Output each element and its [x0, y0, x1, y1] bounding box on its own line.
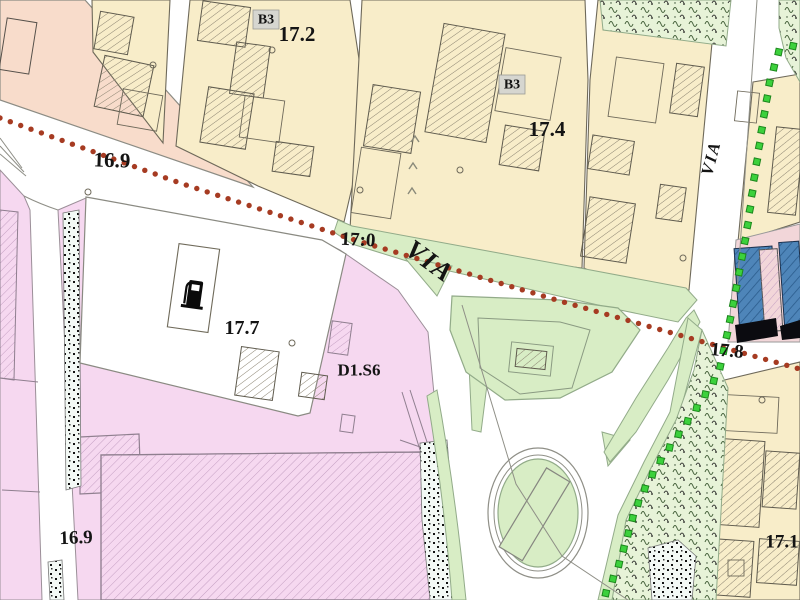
red-dot [752, 354, 757, 359]
red-dot [699, 339, 704, 344]
red-dot [520, 287, 525, 292]
red-dot [467, 271, 472, 276]
red-dot [572, 303, 577, 308]
green-square-dot [775, 48, 783, 56]
map-label-elev-16-9-bottom: 16.9 [59, 527, 93, 549]
red-dot [646, 324, 651, 329]
map-label-elev-16-9-top: 16.9 [93, 147, 131, 172]
red-dot [142, 168, 147, 173]
red-dot [689, 336, 694, 341]
red-dot [267, 210, 272, 215]
red-dot [583, 306, 588, 311]
red-dot [309, 223, 314, 228]
red-dot [49, 134, 54, 139]
red-dot [625, 318, 630, 323]
red-dot [477, 275, 482, 280]
map-label-zone-b3-1: B3 [258, 13, 274, 28]
red-dot [456, 268, 461, 273]
red-dot [562, 300, 567, 305]
green-square-dot [620, 545, 628, 553]
red-dot [320, 227, 325, 232]
green-square-dot [602, 589, 610, 597]
green-square-dot [634, 499, 642, 507]
red-dot [8, 119, 13, 124]
map-label-elev-17-0: 17:0 [340, 229, 376, 252]
green-square-dot [609, 575, 617, 583]
green-square-dot [741, 237, 749, 245]
map-canvas: 16.9B317.2B317.417:0VIAVIA17.7D1.S617.81… [0, 0, 800, 600]
green-square-dot [693, 404, 701, 412]
roundabout [488, 448, 588, 578]
red-dot [288, 216, 293, 221]
green-square-dot [723, 331, 731, 339]
red-dot [604, 312, 609, 317]
red-dot [774, 360, 779, 365]
red-dot [499, 281, 504, 286]
red-dot [636, 321, 641, 326]
green-square-dot [729, 300, 737, 308]
green-square-dot [702, 391, 710, 399]
green-square-dot [675, 430, 683, 438]
red-dot [594, 309, 599, 314]
green-square-dot [710, 377, 718, 385]
industrial-building-hatched [80, 434, 438, 600]
red-dot [153, 171, 158, 176]
map-label-zone-d1s6: D1.S6 [338, 361, 381, 380]
red-dot [795, 366, 800, 371]
red-dot [236, 199, 241, 204]
map-label-elev-17-8: 17.8 [710, 339, 745, 363]
red-dot [657, 327, 662, 332]
red-dot [615, 315, 620, 320]
red-dot [488, 278, 493, 283]
red-dot [132, 164, 137, 169]
green-square-dot [649, 471, 657, 479]
red-dot [225, 196, 230, 201]
red-dot [163, 175, 168, 180]
green-square-dot [753, 158, 761, 166]
green-square-dot [770, 64, 778, 72]
green-square-dot [746, 205, 754, 213]
green-square-dot [755, 142, 763, 150]
red-dot [541, 293, 546, 298]
red-dot [257, 206, 262, 211]
green-square-dot [615, 560, 623, 568]
red-dot [299, 220, 304, 225]
red-dot [173, 179, 178, 184]
red-dot [551, 297, 556, 302]
green-square-dot [760, 110, 768, 118]
red-dot [215, 193, 220, 198]
red-dot [39, 130, 44, 135]
map-label-elev-17-2: 17.2 [279, 22, 316, 46]
red-dot [393, 250, 398, 255]
map-label-elev-17-7: 17.7 [225, 317, 260, 339]
red-dot [530, 290, 535, 295]
map-label-elev-17-4: 17.4 [529, 117, 566, 141]
red-dot [184, 182, 189, 187]
red-dot [763, 357, 768, 362]
green-square-dot [766, 79, 774, 87]
red-dot [784, 363, 789, 368]
red-dot [18, 123, 23, 128]
red-dot [678, 333, 683, 338]
green-square-dot [748, 190, 756, 198]
green-square-dot [744, 221, 752, 229]
green-square-dot [735, 268, 743, 276]
green-square-dot [641, 485, 649, 493]
green-square-dot [789, 42, 797, 50]
red-dot [205, 189, 210, 194]
green-square-dot [758, 126, 766, 134]
red-dot [278, 213, 283, 218]
red-dot [509, 284, 514, 289]
green-square-dot [750, 174, 758, 182]
green-square-dot [716, 363, 724, 371]
red-dot [70, 142, 75, 147]
green-square-dot [732, 284, 740, 292]
blue-buildings-strip [728, 224, 800, 343]
red-dot [330, 230, 335, 235]
green-square-dot [763, 95, 771, 103]
map-label-elev-17-1: 17.1 [765, 532, 798, 553]
cadastral-map: 16.9B317.2B317.417:0VIAVIA17.7D1.S617.81… [0, 0, 800, 600]
red-dot [80, 145, 85, 150]
red-dot [246, 203, 251, 208]
green-square-dot [657, 457, 665, 465]
green-square-dot [624, 530, 632, 538]
red-dot [28, 127, 33, 132]
green-square-dot [684, 417, 692, 425]
map-label-zone-b3-2: B3 [504, 78, 520, 93]
green-square-dot [666, 444, 674, 452]
red-dot [383, 246, 388, 251]
red-dot [668, 330, 673, 335]
green-square-dot [629, 514, 637, 522]
red-dot [59, 138, 64, 143]
red-dot [194, 186, 199, 191]
green-square-dot [726, 316, 734, 324]
green-square-dot [738, 253, 746, 261]
